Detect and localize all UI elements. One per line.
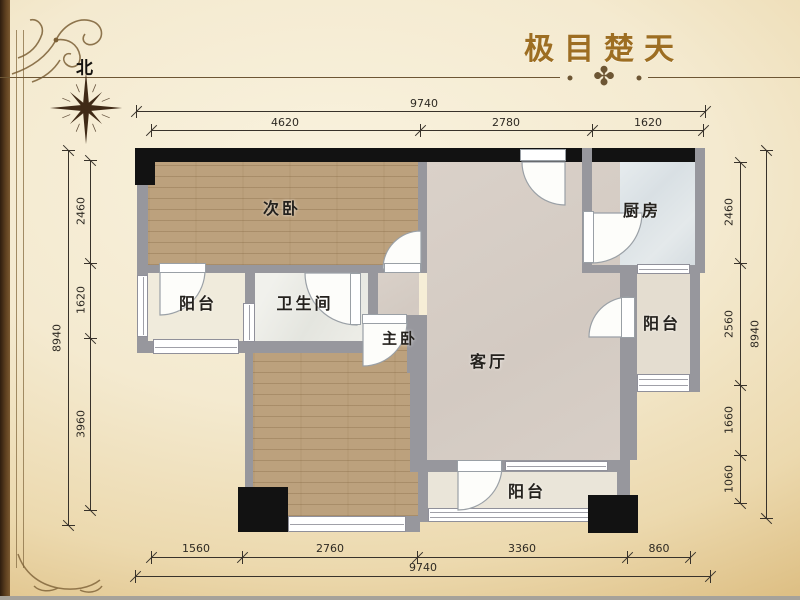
room-label-living-room: 客厅 [470, 348, 508, 372]
dim-label-top-seg: 2780 [492, 116, 520, 129]
dim-left-outer-line [68, 150, 69, 525]
dim-tick [734, 449, 747, 462]
dim-tick [699, 105, 712, 118]
floor-plan-page: 极目楚天 ✤ 北 [0, 0, 800, 600]
dim-label-left-seg: 3960 [75, 410, 88, 438]
dim-tick [84, 154, 97, 167]
room-label-kitchen: 厨房 [623, 197, 661, 221]
dim-tick [84, 504, 97, 517]
column-bottom-left [238, 487, 288, 532]
dim-tick [760, 144, 773, 157]
dim-label-left-seg: 2460 [75, 197, 88, 225]
room-label-balcony-left: 阳台 [179, 290, 217, 314]
column-top-left [135, 148, 155, 185]
dim-label-right-seg: 1660 [723, 406, 736, 434]
column-bottom-right [588, 495, 638, 533]
secondary-bedroom-door-leaf [384, 263, 421, 273]
balcony-right-door-leaf [621, 297, 635, 338]
master-bedroom-door-leaf [362, 314, 407, 324]
dim-tick [236, 551, 249, 564]
room-label-secondary-bedroom: 次卧 [263, 195, 301, 219]
balcony-bottom-door-arc [458, 466, 502, 510]
bathroom-door-leaf [350, 273, 361, 325]
dim-tick [697, 124, 710, 137]
dim-tick [84, 257, 97, 270]
room-label-balcony-bottom: 阳台 [508, 478, 546, 502]
dim-tick [621, 551, 634, 564]
dim-tick [704, 570, 717, 583]
dim-tick [684, 551, 697, 564]
dim-label-bottom-total: 9740 [409, 561, 437, 574]
balcony-left-door-leaf [159, 263, 206, 273]
dim-tick [586, 124, 599, 137]
dim-tick [84, 332, 97, 345]
dim-bottom-outer-line [135, 576, 710, 577]
dim-tick [734, 379, 747, 392]
dim-tick [414, 124, 427, 137]
dim-label-left-seg: 1620 [75, 286, 88, 314]
dim-label-bottom-seg: 2760 [316, 542, 344, 555]
dim-label-top-seg: 4620 [271, 116, 299, 129]
room-label-balcony-right: 阳台 [643, 310, 681, 334]
dim-tick [130, 105, 143, 118]
dim-tick [734, 156, 747, 169]
dim-label-right-total: 8940 [749, 320, 762, 348]
dim-label-bottom-seg: 860 [649, 542, 670, 555]
dim-top-outer-line [136, 111, 706, 112]
kitchen-door-leaf [583, 211, 594, 263]
balcony-bottom-door-leaf [457, 460, 502, 472]
room-label-master-bedroom: 主卧 [382, 328, 418, 349]
dim-label-right-seg: 1060 [723, 465, 736, 493]
dim-tick [129, 570, 142, 583]
dim-label-right-seg: 2560 [723, 310, 736, 338]
dim-tick [145, 124, 158, 137]
dim-label-top-seg: 1620 [634, 116, 662, 129]
dim-label-left-total: 8940 [51, 324, 64, 352]
dim-label-bottom-seg: 1560 [182, 542, 210, 555]
room-label-bathroom: 卫生间 [276, 290, 333, 314]
door-arcs-layer [0, 0, 800, 600]
dim-label-bottom-seg: 3360 [508, 542, 536, 555]
dim-tick [62, 144, 75, 157]
entry-door-leaf [520, 149, 566, 161]
dim-tick [734, 257, 747, 270]
dim-label-top-total: 9740 [410, 97, 438, 110]
dim-tick [62, 519, 75, 532]
dim-top-inner-line [151, 130, 703, 131]
dim-right-outer-line [766, 150, 767, 518]
dim-label-right-seg: 2460 [723, 198, 736, 226]
entry-door-arc [522, 162, 565, 205]
dim-tick [760, 512, 773, 525]
dim-tick [734, 497, 747, 510]
dim-tick [145, 551, 158, 564]
